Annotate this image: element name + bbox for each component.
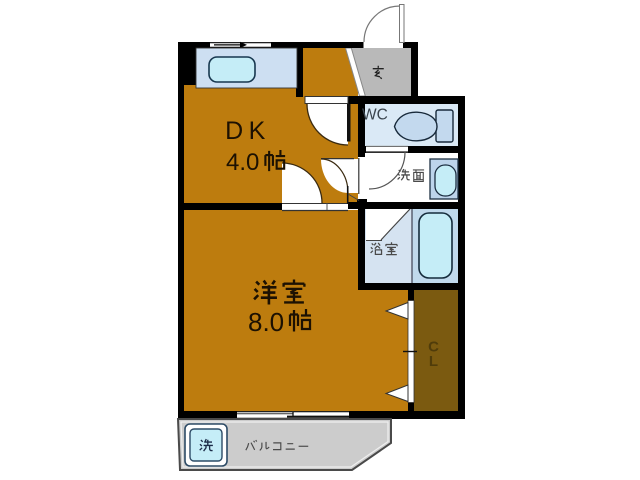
svg-text:8.0: 8.0 bbox=[248, 307, 284, 337]
svg-text:DK: DK bbox=[225, 117, 271, 145]
svg-text:4.0: 4.0 bbox=[226, 149, 259, 176]
svg-text:L: L bbox=[429, 353, 438, 370]
svg-text:WC: WC bbox=[362, 107, 388, 124]
